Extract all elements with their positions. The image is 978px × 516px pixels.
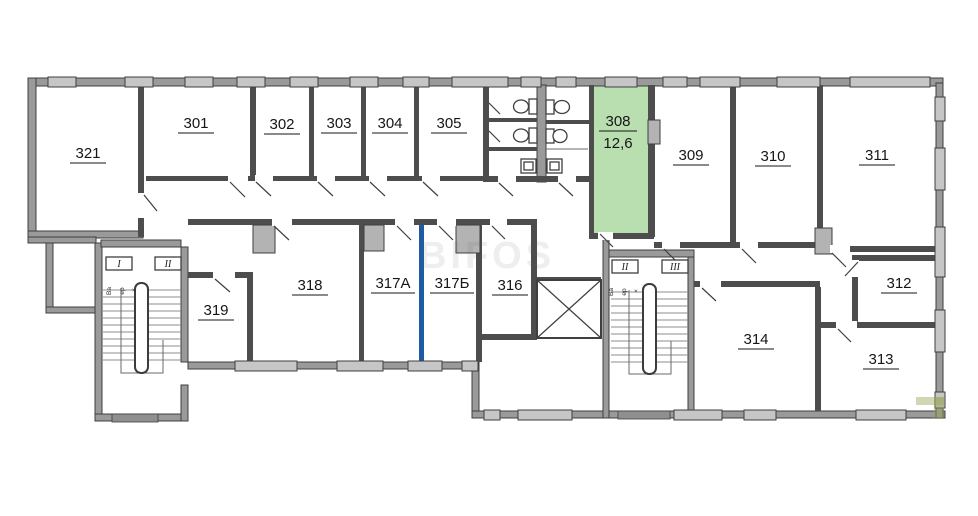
window [856, 410, 906, 420]
window [700, 77, 740, 87]
svg-text:304: 304 [377, 115, 402, 132]
svg-text:318: 318 [297, 277, 322, 294]
window [935, 148, 945, 190]
window [237, 77, 265, 87]
svg-text:317Б: 317Б [435, 275, 470, 292]
flight-label: II [621, 262, 629, 273]
svg-text:319: 319 [203, 302, 228, 319]
room-311: 311 [859, 147, 895, 165]
svg-text:308: 308 [605, 113, 630, 130]
window [484, 410, 500, 420]
window [452, 77, 508, 87]
room-309: 309 [673, 147, 709, 165]
room-314: 314 [738, 331, 774, 349]
room-301: 301 [178, 115, 214, 133]
room-317b: 317Б [430, 275, 474, 293]
toilet-icon [546, 100, 570, 114]
stair-side-text: × [131, 288, 138, 292]
window [518, 410, 572, 420]
room-310: 310 [755, 148, 791, 166]
svg-text:316: 316 [497, 277, 522, 294]
window [935, 227, 945, 277]
flight-label: III [669, 262, 681, 273]
room-318: 318 [292, 277, 328, 295]
window [462, 361, 478, 371]
room-308-highlight-fill[interactable] [592, 86, 650, 237]
svg-text:303: 303 [326, 115, 351, 132]
window [777, 77, 820, 87]
stair-rail [135, 283, 148, 373]
room-302: 302 [264, 116, 300, 134]
svg-text:317А: 317А [375, 275, 410, 292]
room-312: 312 [881, 275, 917, 293]
watermark: BIFOS [419, 235, 555, 277]
svg-text:313: 313 [868, 351, 893, 368]
flight-label: I [116, 259, 121, 270]
window [337, 361, 383, 371]
window [350, 77, 378, 87]
floor-plan: I II Ва ер × II III Ва ер × BIFOS 321 30… [0, 0, 978, 516]
stair-rail [643, 284, 656, 374]
entrance-door [112, 414, 158, 422]
stair-side-text: Ва [106, 287, 113, 295]
window [185, 77, 213, 87]
sink-icon [521, 159, 536, 173]
room-317a: 317А [371, 275, 415, 293]
svg-text:310: 310 [760, 148, 785, 165]
window [290, 77, 318, 87]
staircase-left: I II Ва ер × [103, 257, 181, 373]
room-319: 319 [198, 302, 234, 320]
svg-text:309: 309 [678, 147, 703, 164]
window [605, 77, 637, 87]
svg-text:305: 305 [436, 115, 461, 132]
window [935, 310, 945, 352]
svg-text:314: 314 [743, 331, 768, 348]
room-303: 303 [321, 115, 357, 133]
svg-text:302: 302 [269, 116, 294, 133]
svg-text:301: 301 [183, 115, 208, 132]
room-316: 316 [492, 277, 528, 295]
flight-label: II [164, 259, 172, 270]
window [663, 77, 687, 87]
window [556, 77, 576, 87]
svg-text:311: 311 [865, 147, 889, 164]
room-304: 304 [372, 115, 408, 133]
svg-text:312: 312 [886, 275, 911, 292]
stair-side-text: Ва [608, 288, 615, 296]
room-308-area: 12,6 [603, 135, 632, 152]
stair-side-text: × [633, 289, 640, 293]
staircase-right: II III Ва ер × [608, 260, 688, 374]
room-313: 313 [863, 351, 899, 369]
window [674, 410, 722, 420]
window [521, 77, 541, 87]
stair-side-text: ер [119, 287, 126, 295]
window [403, 77, 429, 87]
entrance-door [618, 411, 670, 419]
room-305: 305 [431, 115, 467, 133]
window [935, 97, 945, 121]
window [48, 77, 76, 87]
stair-side-text: ер [621, 288, 628, 296]
toilet-icon [514, 128, 538, 143]
window [125, 77, 153, 87]
window [744, 410, 776, 420]
elevator-shaft [537, 280, 601, 338]
room-321: 321 [70, 145, 106, 163]
toilet-icon [546, 129, 567, 143]
window [235, 361, 297, 371]
toilet-icon [514, 99, 538, 114]
window [850, 77, 930, 87]
svg-text:321: 321 [75, 145, 100, 162]
sink-icon [547, 159, 562, 173]
window [408, 361, 442, 371]
